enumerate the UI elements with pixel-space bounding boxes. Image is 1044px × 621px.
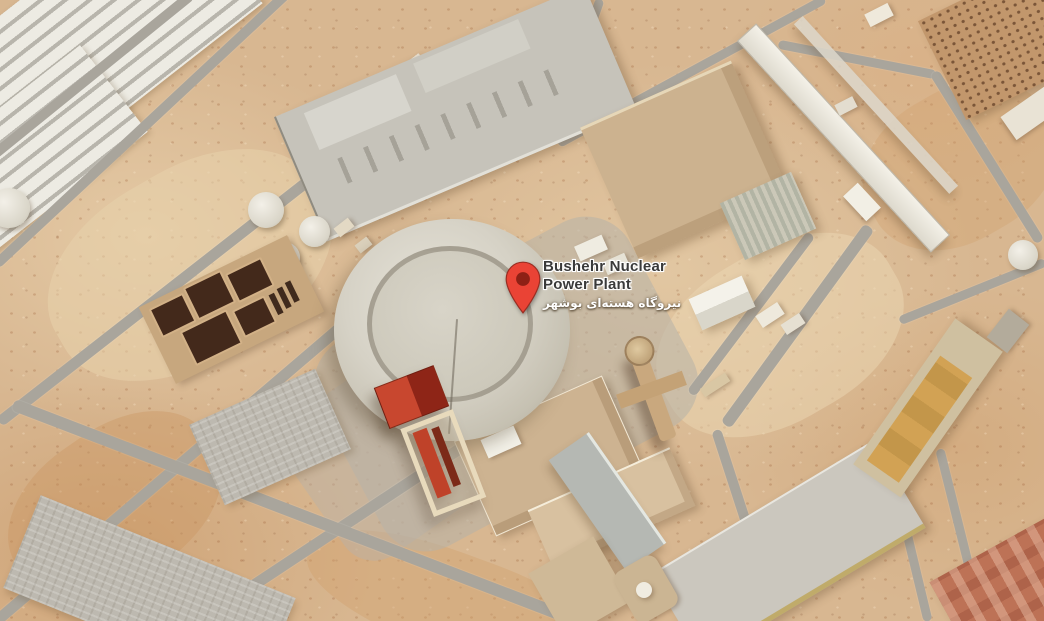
map-pin-icon[interactable] bbox=[505, 261, 541, 315]
pin-body bbox=[506, 262, 540, 313]
small-structure bbox=[636, 582, 652, 598]
storage-tank bbox=[1008, 240, 1038, 270]
pin-dot bbox=[516, 272, 530, 286]
marker-title-line2: Power Plant bbox=[543, 276, 681, 294]
marker-title-line1: Bushehr Nuclear bbox=[543, 258, 681, 276]
satellite-map[interactable]: Bushehr Nuclear Power Plant نیروگاه هسته… bbox=[0, 0, 1044, 621]
marker-label[interactable]: Bushehr Nuclear Power Plant نیروگاه هسته… bbox=[543, 258, 681, 310]
marker-subtitle-farsi: نیروگاه هسته‌ای بوشهر bbox=[543, 296, 681, 310]
storage-tank bbox=[299, 216, 330, 247]
storage-tank bbox=[248, 192, 284, 228]
